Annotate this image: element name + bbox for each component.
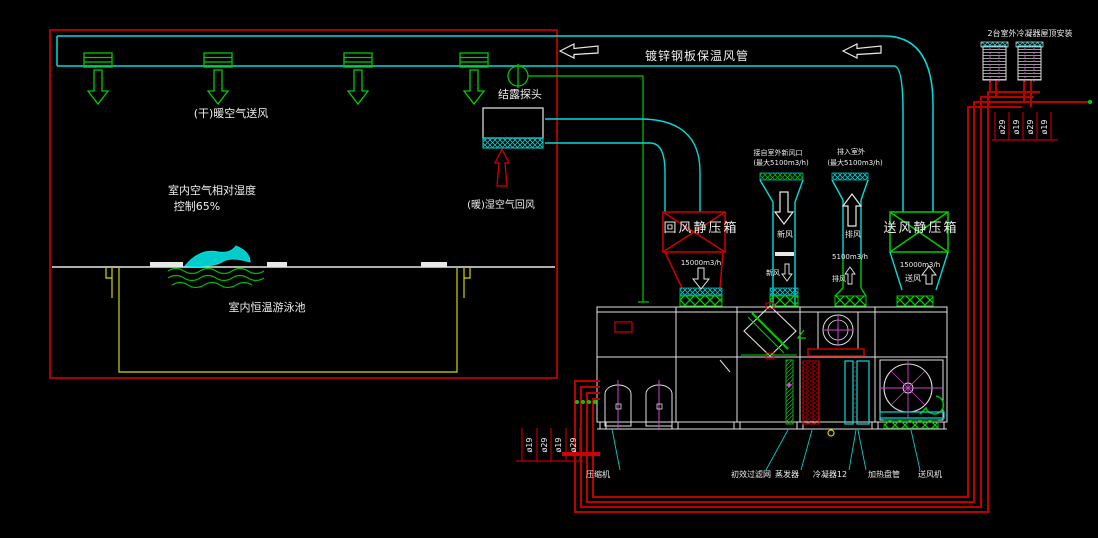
- fresh-air-dir: 新风: [777, 229, 793, 239]
- exhaust-duct: [832, 173, 868, 306]
- diffuser-icon: [84, 53, 112, 104]
- return-plenum-label: 回风静压箱: [663, 220, 738, 236]
- small-up-arrow-icon: [845, 267, 855, 284]
- probe-label: 结露探头: [498, 88, 542, 101]
- cad-canvas: 镀锌钢板保温风管 结露探头 (干)暖空气送风 室内空气相对湿度 控制65% 室内…: [0, 0, 1098, 538]
- refrigerant-pipes: [575, 80, 1088, 512]
- fan-icon: [798, 312, 864, 356]
- exhaust-title: 排入室外: [837, 147, 865, 156]
- condensers-label: 2台室外冷凝器屋顶安装: [987, 28, 1072, 38]
- pipe-size-label: ø29: [569, 437, 578, 452]
- return-duct: [545, 119, 700, 212]
- pipe-size-label: ø19: [1012, 119, 1021, 134]
- supply-flow-label: 15000m3/h: [900, 261, 940, 269]
- down-arrow-icon: [775, 192, 793, 224]
- pool-deck: [52, 262, 555, 267]
- pipe-end-marker: [1088, 100, 1092, 104]
- water-wave-lines: [168, 269, 264, 288]
- component-label: 压缩机: [586, 469, 610, 479]
- room-return-label: (暖)湿空气回风: [467, 198, 535, 211]
- component-label: 送风机: [918, 469, 942, 479]
- pipe-size-label: ø29: [998, 119, 1007, 134]
- ceiling-diffusers: [84, 53, 488, 104]
- up-arrow-icon: [843, 194, 861, 226]
- fresh-air-small: 新风: [766, 268, 780, 277]
- down-arrow-icon: [693, 268, 709, 289]
- humidity-label-2: 控制65%: [174, 199, 220, 213]
- exhaust-max: (最大5100m3/h): [827, 158, 883, 167]
- pipe-size-label: ø29: [1026, 119, 1035, 134]
- exhaust-small: 排风: [832, 274, 846, 283]
- heat-exchanger-icon: [741, 303, 797, 359]
- component-label: 加热盘管: [868, 469, 900, 479]
- swimmer-icon: [185, 246, 250, 267]
- component-leader-lines: [612, 429, 920, 470]
- fresh-air-duct: [760, 173, 803, 307]
- pipe-size-label: ø19: [1040, 119, 1049, 134]
- drain-point: [828, 430, 834, 436]
- exhaust-flow: 5100m3/h: [832, 253, 868, 261]
- damper-bar: [775, 252, 794, 256]
- small-down-arrow-icon: [782, 264, 792, 281]
- fresh-air-max: (最大5100m3/h): [753, 158, 809, 167]
- pool-label: 室内恒温游泳池: [229, 300, 306, 314]
- component-label: 蒸发器: [775, 469, 799, 479]
- pipe-size-label: ø19: [525, 437, 534, 452]
- component-label: 初效过滤网: [731, 469, 771, 479]
- supply-plenum-label: 送风静压箱: [883, 220, 958, 236]
- control-box: [615, 322, 632, 332]
- return-flow-label: 15000m3/h: [681, 259, 721, 267]
- hvac-schematic: 镀锌钢板保温风管 结露探头 (干)暖空气送风 室内空气相对湿度 控制65% 室内…: [0, 0, 1098, 538]
- pipe-size-label: ø19: [554, 437, 563, 452]
- main-duct-label: 镀锌钢板保温风管: [645, 48, 749, 63]
- filter-strip: [786, 360, 793, 424]
- exhaust-dir: 排风: [845, 229, 861, 239]
- diffuser-icon: [204, 53, 232, 104]
- fresh-air-title: 接自室外新风口: [754, 148, 803, 157]
- return-funnel-connection: [680, 268, 722, 306]
- outdoor-condenser-unit: [1016, 42, 1043, 82]
- supply-dir-label: 送风: [905, 273, 921, 283]
- diffuser-icon: [344, 53, 372, 104]
- component-label: 冷凝器12: [813, 469, 847, 479]
- room-supply-label: (干)暖空气送风: [194, 106, 269, 120]
- return-air-arrow-icon: [495, 149, 509, 186]
- condenser-coil: [845, 361, 869, 424]
- supply-fan-icon: [880, 360, 944, 428]
- pipe-size-label: ø29: [540, 437, 549, 452]
- diffuser-icon: [460, 53, 488, 104]
- humidity-label-1: 室内空气相对湿度: [168, 183, 256, 197]
- return-grille: [483, 108, 543, 148]
- outdoor-condenser-unit: [981, 42, 1008, 82]
- pool-basin: [106, 268, 470, 372]
- evaporator-coil: [803, 361, 819, 424]
